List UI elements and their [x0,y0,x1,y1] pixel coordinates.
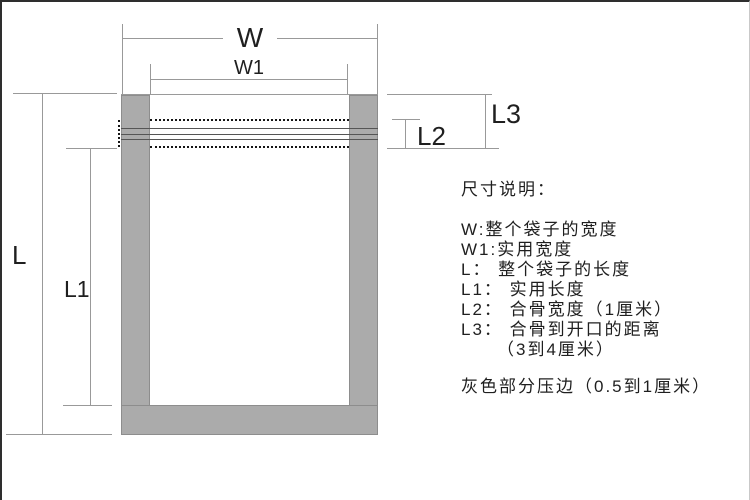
l3-extension-line-top [387,94,492,95]
l1-extension-line-top [66,148,117,149]
w1-dimension-line [150,79,348,80]
l1-dimension-line [90,148,91,406]
l1-extension-line-bottom [63,405,112,406]
seal-solid-line-1 [121,128,378,129]
w1-dimension-label: W1 [150,58,348,79]
legend: 尺寸说明： W:整个袋子的宽度 W1:实用宽度 L： 整个袋子的长度 L1： 实… [461,180,750,397]
l-extension-line-top [13,93,117,94]
legend-line-gray-note: 灰色部分压边（0.5到1厘米） [461,377,750,397]
legend-line-l: L： 整个袋子的长度 [461,260,750,280]
seal-dotted-left-mark [118,120,120,147]
l-extension-line-bottom [6,434,112,435]
legend-line-l2: L2： 合骨宽度（1厘米） [461,300,750,320]
bag-bottom-gray-edge [121,405,378,435]
seal-dotted-line-bottom [150,146,349,148]
legend-line-l3: L3： 合骨到开口的距离 [461,320,750,340]
bag-right-gray-edge [349,95,378,435]
legend-line-l1: L1： 实用长度 [461,280,750,300]
l-dimension-label: L [12,240,26,271]
legend-line-w1: W1:实用宽度 [461,240,750,260]
l3-dimension-line [485,94,486,149]
l2-dimension-line [405,119,406,149]
l3-dimension-label: L3 [491,99,521,130]
seal-dotted-line-top [150,119,349,121]
l1-dimension-label: L1 [64,276,90,303]
legend-line-w: W:整个袋子的宽度 [461,220,750,240]
legend-line-l3-range: （3到4厘米） [461,340,750,360]
l-dimension-line [42,93,43,435]
seal-solid-line-2 [121,134,378,135]
diagram-canvas: W W1 L L1 L3 L2 尺寸说明： W:整个袋子的宽度 W1:实用宽度 … [0,0,750,500]
legend-title: 尺寸说明： [461,180,750,200]
bag-top-edge-line [121,94,378,95]
w-dimension-label: W [122,19,378,57]
l2-extension-line-top [392,119,420,120]
l2-dimension-label: L2 [417,121,446,152]
seal-solid-line-3 [121,139,378,140]
bag-left-gray-edge [121,95,150,435]
w-label-text: W [223,22,277,53]
